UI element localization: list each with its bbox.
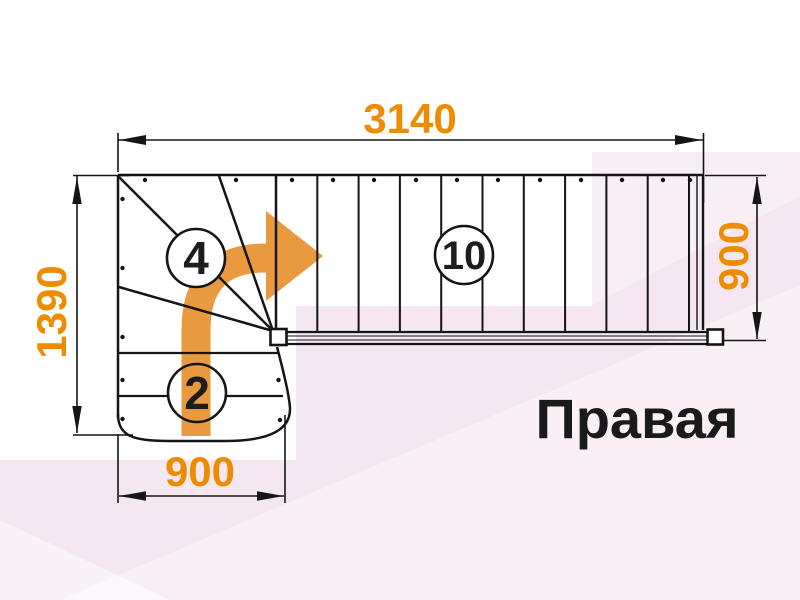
dimension-bottom-value: 900	[165, 448, 235, 495]
lower-step-count-value: 2	[184, 367, 210, 419]
winder-step-count: 4	[167, 229, 225, 287]
straight-step-count: 10	[435, 226, 493, 284]
orientation-label: Правая	[535, 387, 738, 450]
straight-step-count-value: 10	[442, 234, 487, 278]
winder-step-count-value: 4	[183, 232, 209, 284]
newel-post-left	[271, 329, 287, 345]
dimension-left-value: 1390	[28, 265, 75, 358]
dimension-top-value: 3140	[363, 95, 456, 142]
stair-plan-canvas: 3140 1390 900 900	[0, 0, 800, 600]
stair-plan-drawing: 3140 1390 900 900	[0, 0, 800, 600]
dimension-right-value: 900	[710, 221, 757, 291]
newel-post-right	[708, 330, 724, 345]
